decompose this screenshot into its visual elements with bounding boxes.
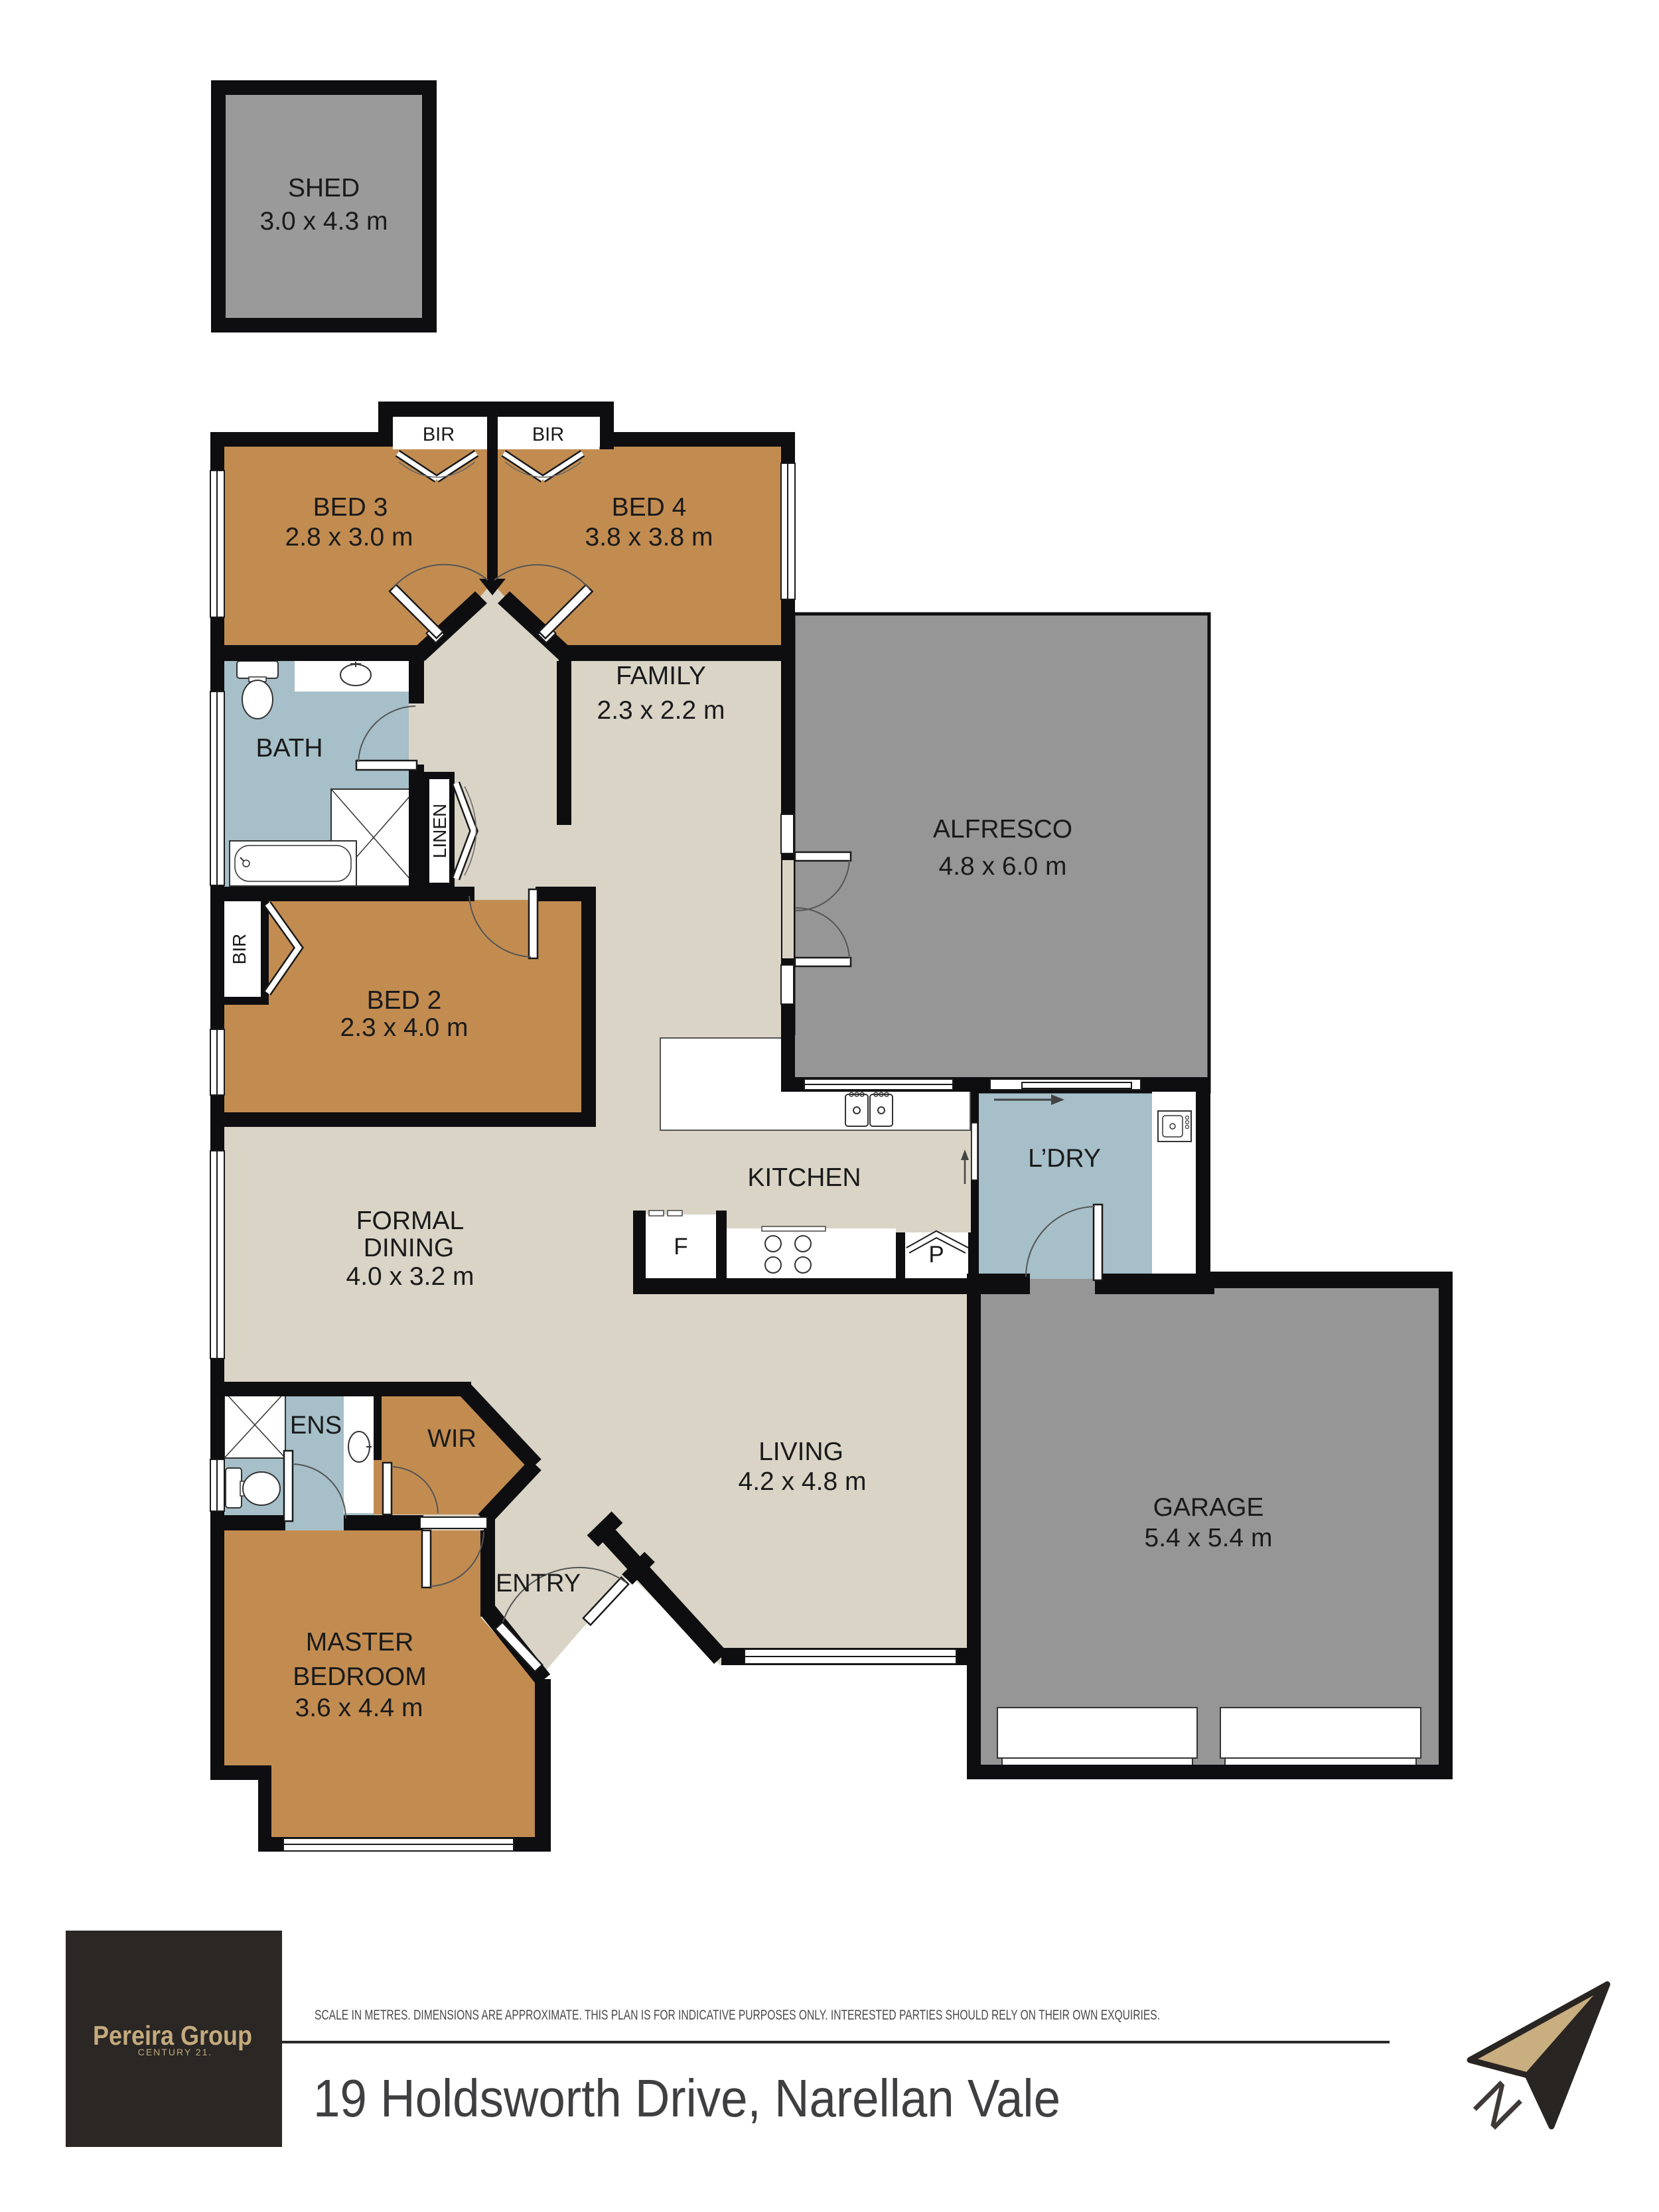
svg-text:BIR: BIR <box>532 424 564 445</box>
svg-text:4.2 x 4.8 m: 4.2 x 4.8 m <box>739 1467 867 1496</box>
svg-text:SCALE IN METRES. DIMENSIONS AR: SCALE IN METRES. DIMENSIONS ARE APPROXIM… <box>315 2008 1160 2023</box>
svg-text:WIR: WIR <box>427 1425 476 1453</box>
svg-text:2.3 x 2.2 m: 2.3 x 2.2 m <box>597 696 725 725</box>
svg-text:19 Holdsworth Drive, Narellan: 19 Holdsworth Drive, Narellan Vale <box>313 2069 1060 2128</box>
svg-text:BED 2: BED 2 <box>367 986 442 1015</box>
svg-text:2.8 x 3.0 m: 2.8 x 3.0 m <box>285 523 413 552</box>
svg-text:MASTER: MASTER <box>306 1628 414 1657</box>
svg-text:3.0 x 4.3 m: 3.0 x 4.3 m <box>260 207 388 236</box>
svg-text:SHED: SHED <box>288 174 360 202</box>
svg-text:2.3 x 4.0 m: 2.3 x 4.0 m <box>340 1013 469 1042</box>
svg-text:CENTURY 21.: CENTURY 21. <box>138 2047 213 2057</box>
svg-text:3.6 x 4.4 m: 3.6 x 4.4 m <box>295 1694 423 1722</box>
svg-text:4.8 x 6.0 m: 4.8 x 6.0 m <box>939 852 1067 881</box>
svg-text:ENS: ENS <box>290 1412 342 1439</box>
svg-text:5.4 x 5.4 m: 5.4 x 5.4 m <box>1145 1524 1273 1552</box>
svg-text:BIR: BIR <box>423 424 455 445</box>
svg-text:LIVING: LIVING <box>758 1438 843 1466</box>
svg-text:BEDROOM: BEDROOM <box>293 1662 427 1691</box>
svg-text:P: P <box>928 1242 944 1268</box>
svg-text:FAMILY: FAMILY <box>616 662 706 690</box>
svg-text:BED 3: BED 3 <box>313 493 388 522</box>
svg-text:FORMAL: FORMAL <box>356 1207 465 1235</box>
svg-text:ALFRESCO: ALFRESCO <box>933 815 1072 844</box>
svg-text:BATH: BATH <box>255 734 323 763</box>
svg-text:4.0 x 3.2 m: 4.0 x 3.2 m <box>346 1262 474 1291</box>
svg-text:F: F <box>674 1234 687 1260</box>
svg-text:BED 4: BED 4 <box>612 493 687 522</box>
svg-text:LINEN: LINEN <box>429 804 450 858</box>
svg-text:BIR: BIR <box>229 934 250 965</box>
svg-text:DINING: DINING <box>364 1234 455 1262</box>
svg-text:KITCHEN: KITCHEN <box>747 1163 861 1192</box>
svg-text:GARAGE: GARAGE <box>1153 1493 1264 1522</box>
svg-text:L’DRY: L’DRY <box>1028 1144 1101 1173</box>
svg-text:ENTRY: ENTRY <box>496 1570 581 1597</box>
svg-text:3.8 x 3.8 m: 3.8 x 3.8 m <box>585 523 713 552</box>
